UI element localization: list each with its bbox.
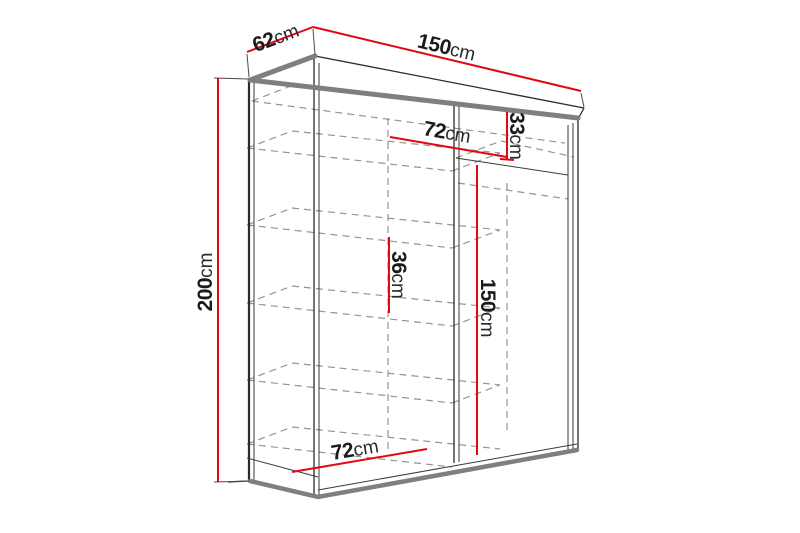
shelf-3 [247,286,500,326]
top-left-edge [250,56,315,80]
dim-label-36: 36cm [387,251,410,299]
dim-label-width-150: 150cm [415,30,478,66]
diagram-canvas: 62cm 150cm 200cm 72cm 33cm 36cm 150cm 72… [0,0,800,533]
dim-label-depth-62: 62cm [249,19,302,57]
dim-label-lower-72: 72cm [329,434,380,465]
dim-label-height-200: 200cm [194,253,217,312]
bottom-inner-left [247,458,318,477]
wardrobe-dimension-diagram: 62cm 150cm 200cm 72cm 33cm 36cm 150cm 72… [0,0,800,533]
shelf-4 [247,363,500,403]
dim-label-33: 33cm [505,112,528,160]
shelf-2 [247,208,500,248]
dim-label-hanging-150: 150cm [476,279,499,338]
